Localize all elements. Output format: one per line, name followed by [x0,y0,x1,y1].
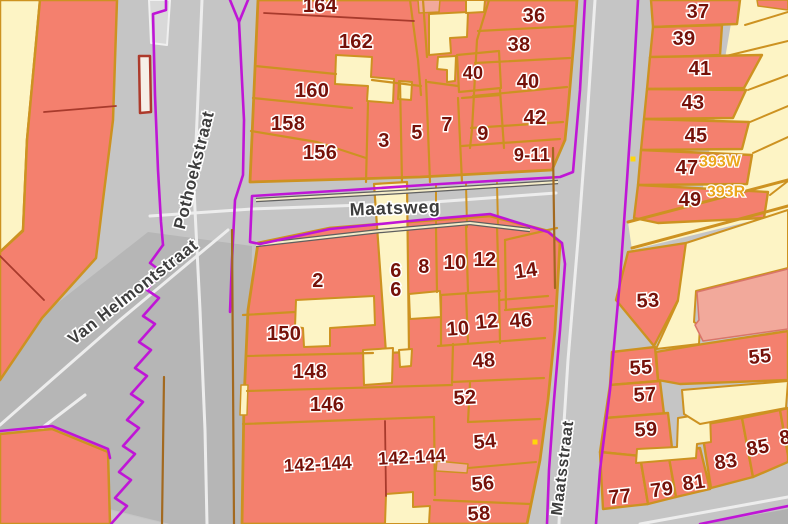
label-8: 8 [418,256,429,278]
label-393R: 393R [707,184,746,201]
map-canvas[interactable]: 164162160158156357940363840429-113739414… [0,0,788,524]
label-45: 45 [685,125,708,147]
cadastral-map-frame: 164162160158156357940363840429-113739414… [0,0,788,524]
label-52: 52 [453,386,477,409]
label-59: 59 [634,418,658,441]
courtyard-center-right[interactable] [409,291,441,319]
boundary-vertex-dot [631,157,636,162]
label-43: 43 [682,92,705,114]
label-47: 47 [676,157,699,179]
label-53: 53 [636,289,660,312]
label-158: 158 [271,113,305,135]
label-162: 162 [339,31,373,53]
label-77: 77 [607,485,632,509]
label-48: 48 [472,349,496,373]
label-3: 3 [378,130,389,152]
label-56: 56 [471,472,496,496]
label-81: 81 [681,471,707,496]
label-6b: 6 [390,279,401,301]
label-9: 9 [477,123,488,145]
label-36: 36 [523,5,546,27]
parcel-pink-tip[interactable] [418,0,440,13]
label-40: 40 [517,71,540,93]
label-10b: 10 [446,317,470,341]
courtyard-36[interactable] [466,0,485,13]
boundary-vertex-dot [533,440,538,445]
label-142-144b: 142-144 [377,445,446,469]
street-label-maatsweg: Maatsweg [349,196,440,219]
label-10: 10 [444,252,467,274]
label-42: 42 [524,107,547,129]
label-58: 58 [467,502,491,524]
label-54: 54 [473,430,498,454]
label-164: 164 [303,0,338,17]
label-160: 160 [295,80,329,102]
label-38: 38 [508,34,531,56]
label-9-11: 9-11 [514,145,550,165]
label-57: 57 [633,383,657,406]
label-49: 49 [679,189,702,211]
label-148: 148 [293,361,327,383]
lot-line-street-crossing [497,183,498,226]
lot-line [499,291,500,343]
label-12: 12 [474,249,497,271]
red-outlined-building [139,56,151,113]
label-156: 156 [303,142,337,164]
lot-line [436,228,437,292]
courtyard-sliver-146[interactable] [240,385,248,415]
label-83: 83 [713,450,739,475]
label-40-small: 40 [463,63,484,83]
label-14: 14 [513,258,539,283]
label-39: 39 [673,28,696,50]
label-5: 5 [411,122,422,144]
label-150: 150 [267,323,301,345]
label-79: 79 [649,478,675,503]
label-37: 37 [687,1,710,23]
label-2: 2 [312,270,323,292]
label-41: 41 [689,58,712,80]
label-55-big: 55 [747,345,772,369]
label-12b: 12 [475,310,500,334]
lot-line [452,344,453,383]
courtyard-148b[interactable] [399,349,412,367]
label-55-small: 55 [629,356,653,379]
label-393W: 393W [699,154,742,171]
label-142-144a: 142-144 [283,452,352,476]
label-146: 146 [310,394,344,416]
label-7: 7 [441,114,452,136]
label-46: 46 [509,309,533,333]
label-85: 85 [745,435,771,461]
